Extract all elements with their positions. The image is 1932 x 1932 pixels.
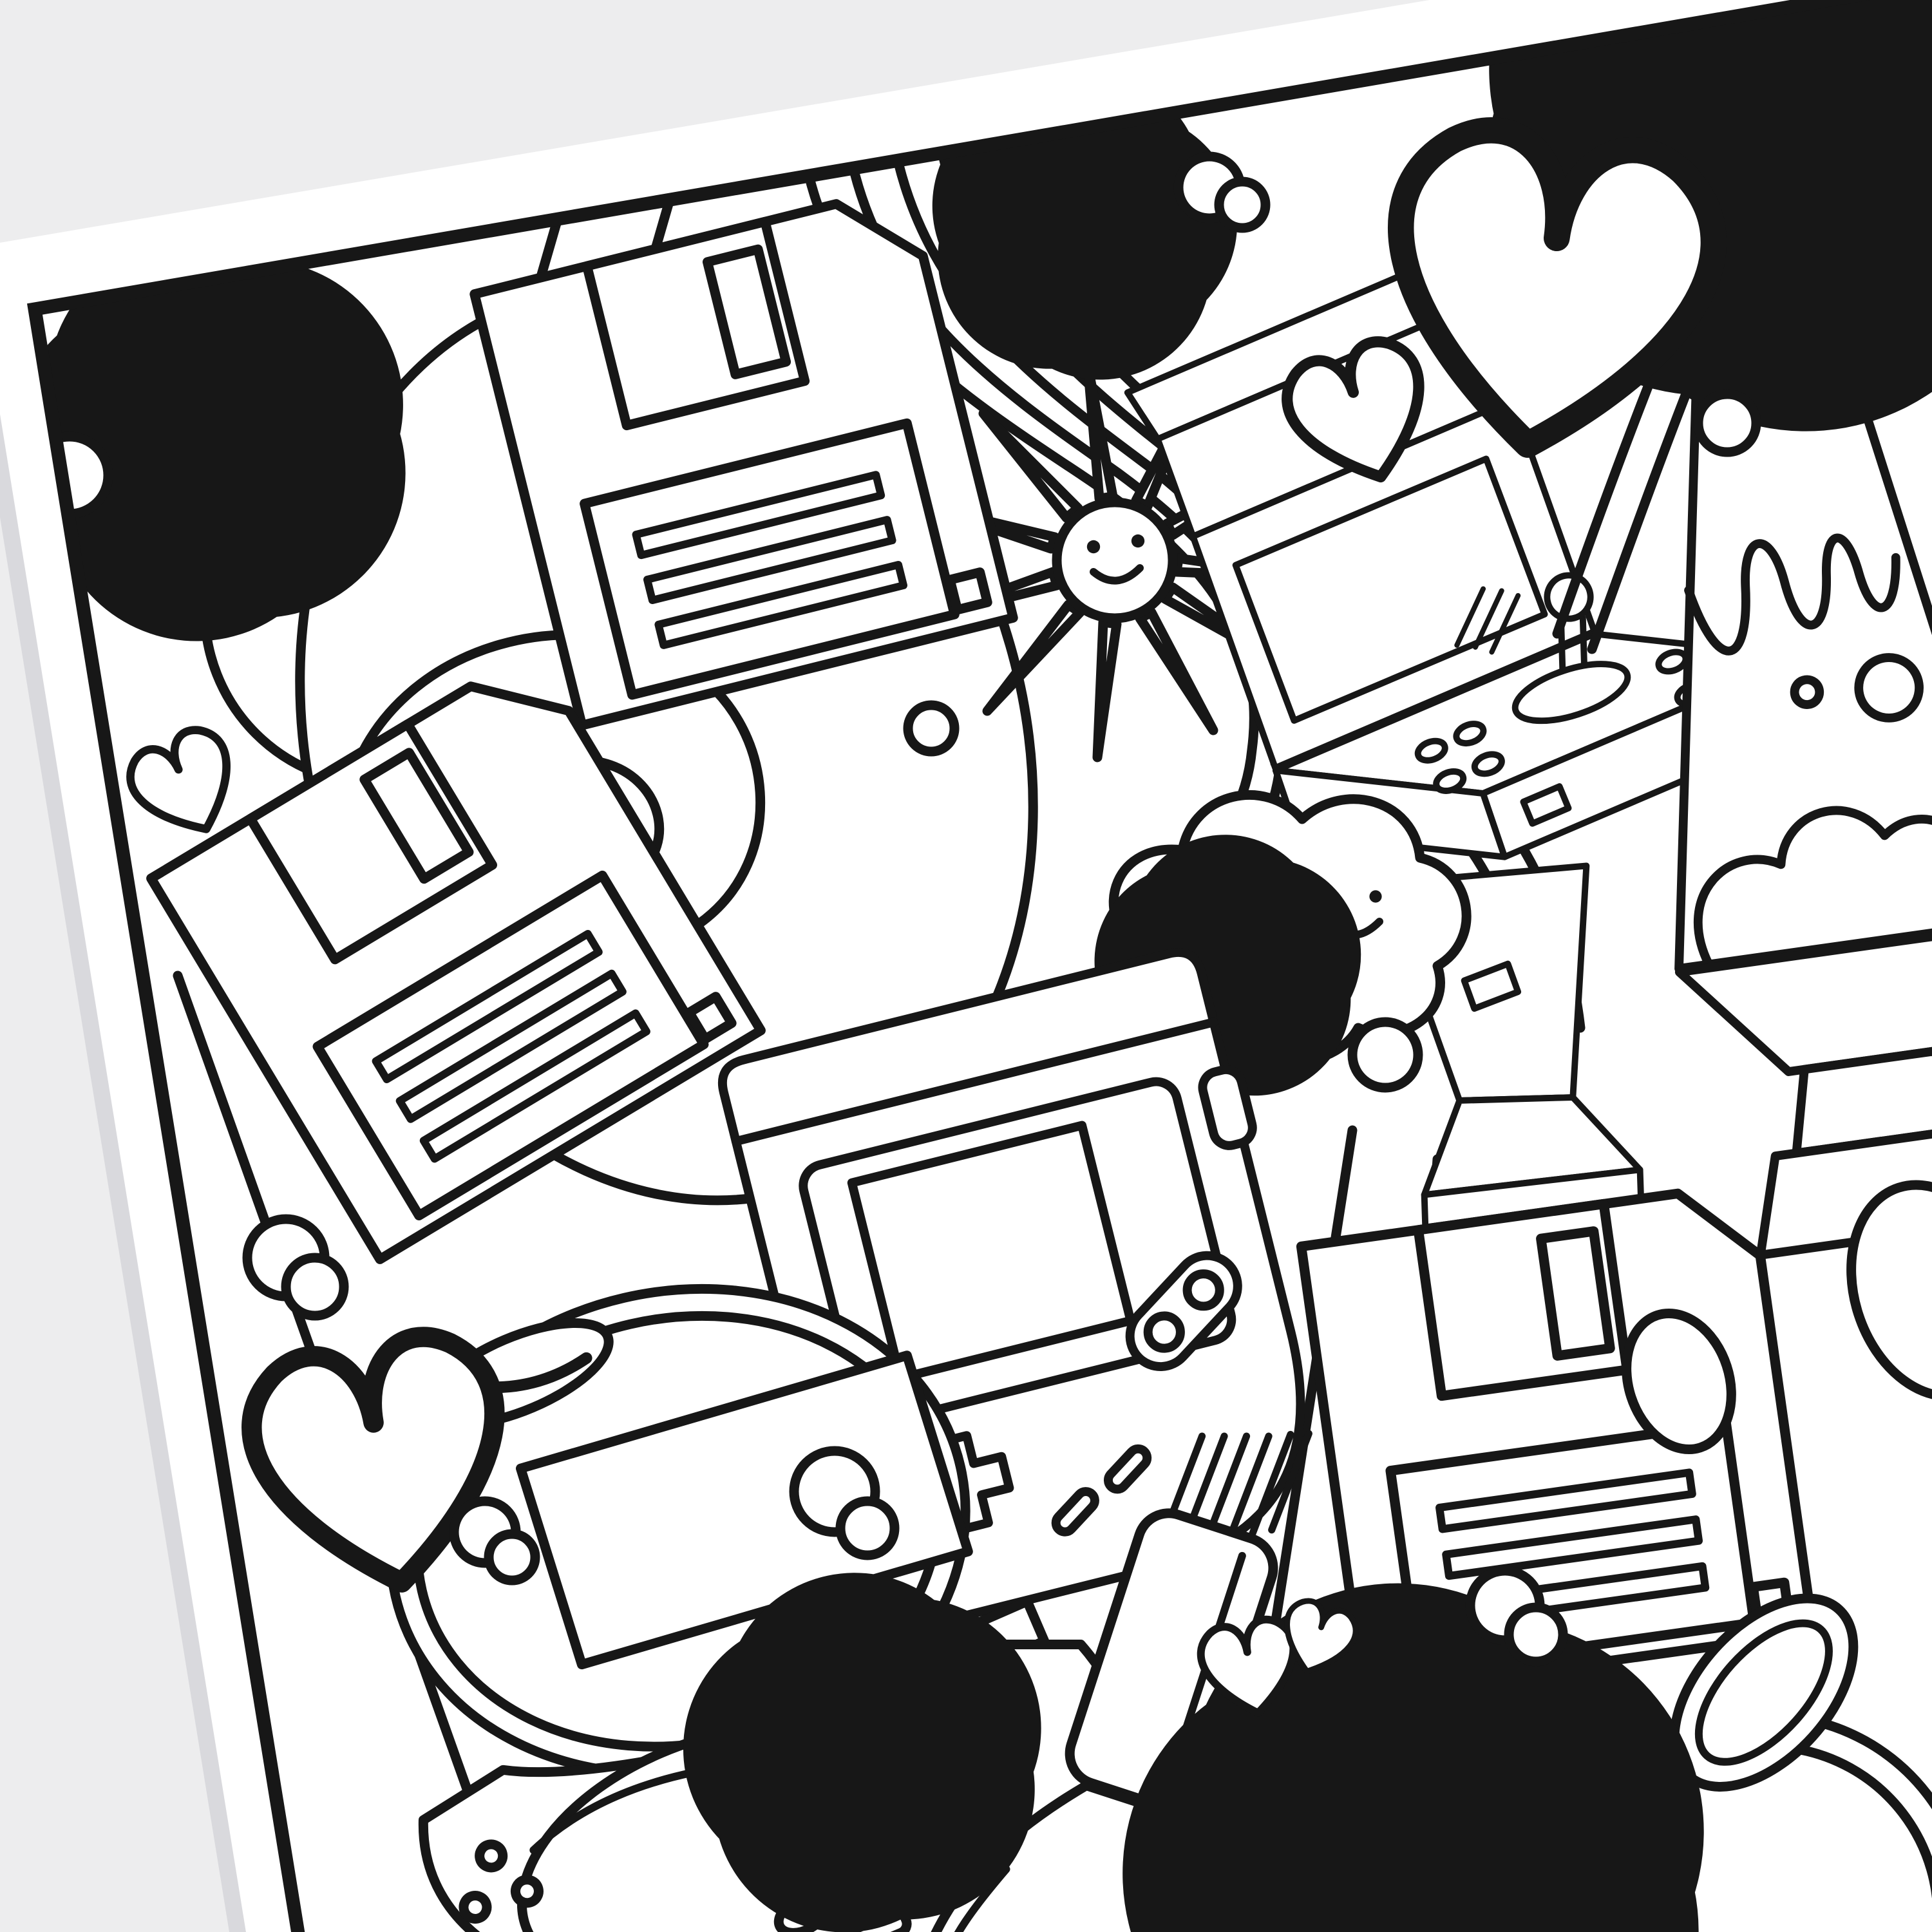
star [1320, 1775, 1516, 1932]
circle [1352, 1022, 1418, 1088]
circle [908, 705, 954, 752]
cd-button [477, 1842, 505, 1870]
star [806, 1693, 923, 1806]
sun-face [1057, 502, 1173, 618]
lamp-bubble-small [1793, 678, 1821, 706]
star [1033, 176, 1132, 272]
coloring-page-mockup: Retro tech doodle coloring page [0, 0, 1932, 1932]
circle [1698, 394, 1756, 452]
coloring-page-illustration: Retro tech doodle coloring page [0, 0, 1932, 1932]
cd-button [513, 1877, 541, 1905]
lamp-bubble-big [1855, 654, 1923, 722]
star [141, 367, 281, 504]
cd-button [461, 1893, 489, 1921]
